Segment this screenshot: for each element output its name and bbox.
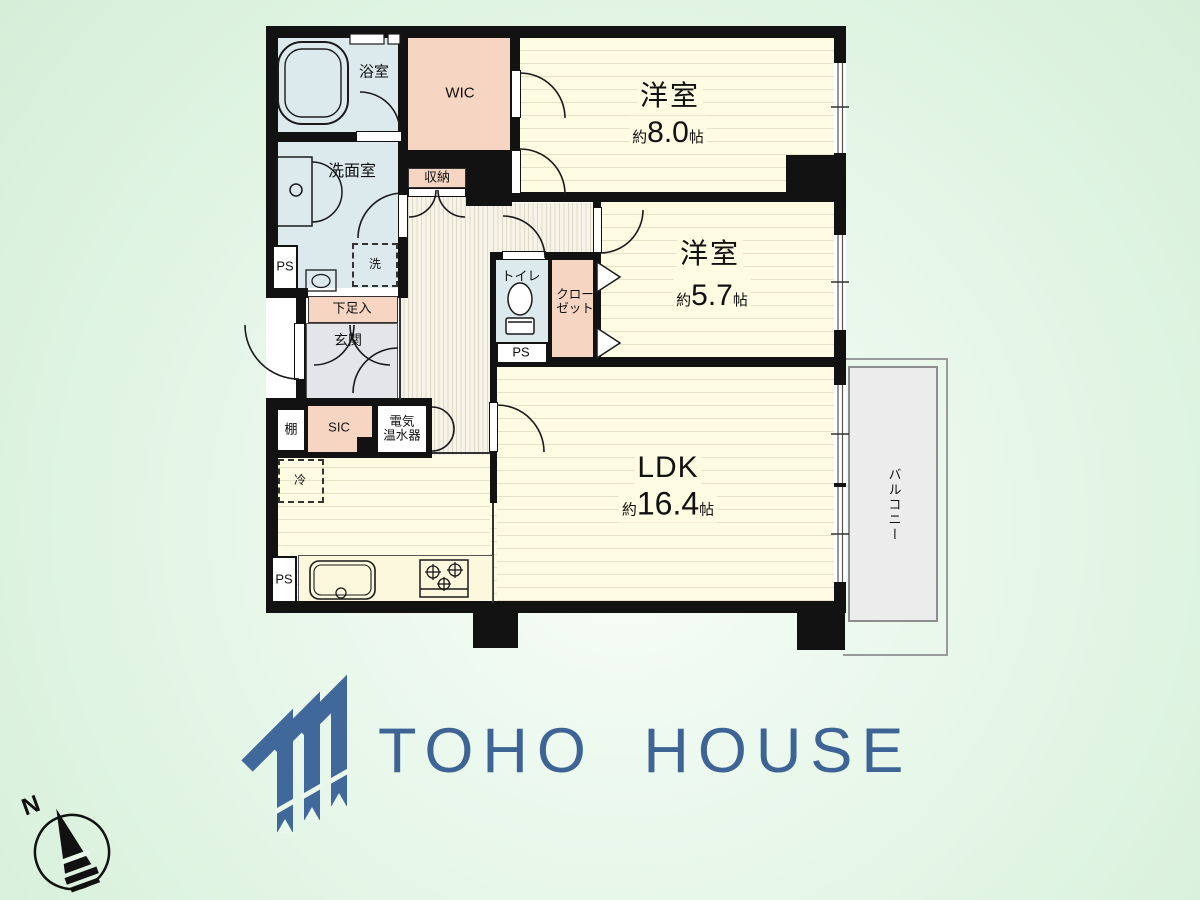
ps-label-toilet: PS (512, 346, 529, 361)
laundry-label: 洗 (369, 258, 381, 272)
bedroom8-name: 洋室 (637, 80, 703, 112)
toilet-icon (506, 283, 534, 334)
sic-label: SIC (328, 421, 350, 436)
bedroom57-name: 洋室 (677, 238, 743, 270)
slop-sink-icon (306, 270, 336, 291)
entrance-label: 玄関 (334, 332, 362, 348)
storage-label: 収納 (424, 171, 450, 186)
kitchen-sink-icon (310, 561, 375, 599)
bedroom8-size: 約8.0帖 (629, 116, 707, 151)
floorplan-page: 浴室 洗面室 WIC 収納 トイレ クロー ゼット 下足入 玄関 棚 SIC 電… (0, 0, 1200, 900)
stove-icon (420, 560, 468, 597)
closet-label: クロー ゼット (556, 288, 594, 317)
ldk-size: 約16.4帖 (619, 486, 717, 523)
toho-house-logo-text: TOHO HOUSE (378, 715, 912, 787)
ldk-name: LDK (634, 451, 701, 486)
toilet-label: トイレ (501, 270, 540, 285)
fridge-label: 冷 (294, 474, 306, 488)
balcony-label: バルコニー (886, 468, 901, 543)
washroom-label: 洗面室 (328, 163, 376, 181)
water-heater-label: 電気 温水器 (383, 415, 421, 444)
shoe-box-label: 下足入 (332, 302, 371, 317)
bathroom-label: 浴室 (359, 63, 389, 80)
ps-label-washroom: PS (276, 260, 293, 275)
toho-house-logo-mark (247, 694, 339, 832)
wic-label: WIC (445, 84, 474, 101)
shelf-label: 棚 (284, 423, 297, 438)
ps-label-kitchen: PS (275, 573, 292, 588)
bedroom57-size: 約5.7帖 (673, 279, 751, 314)
bathtub-icon (278, 42, 348, 124)
folding-door-icons (597, 262, 620, 358)
bath-shelf-icon (350, 34, 400, 44)
